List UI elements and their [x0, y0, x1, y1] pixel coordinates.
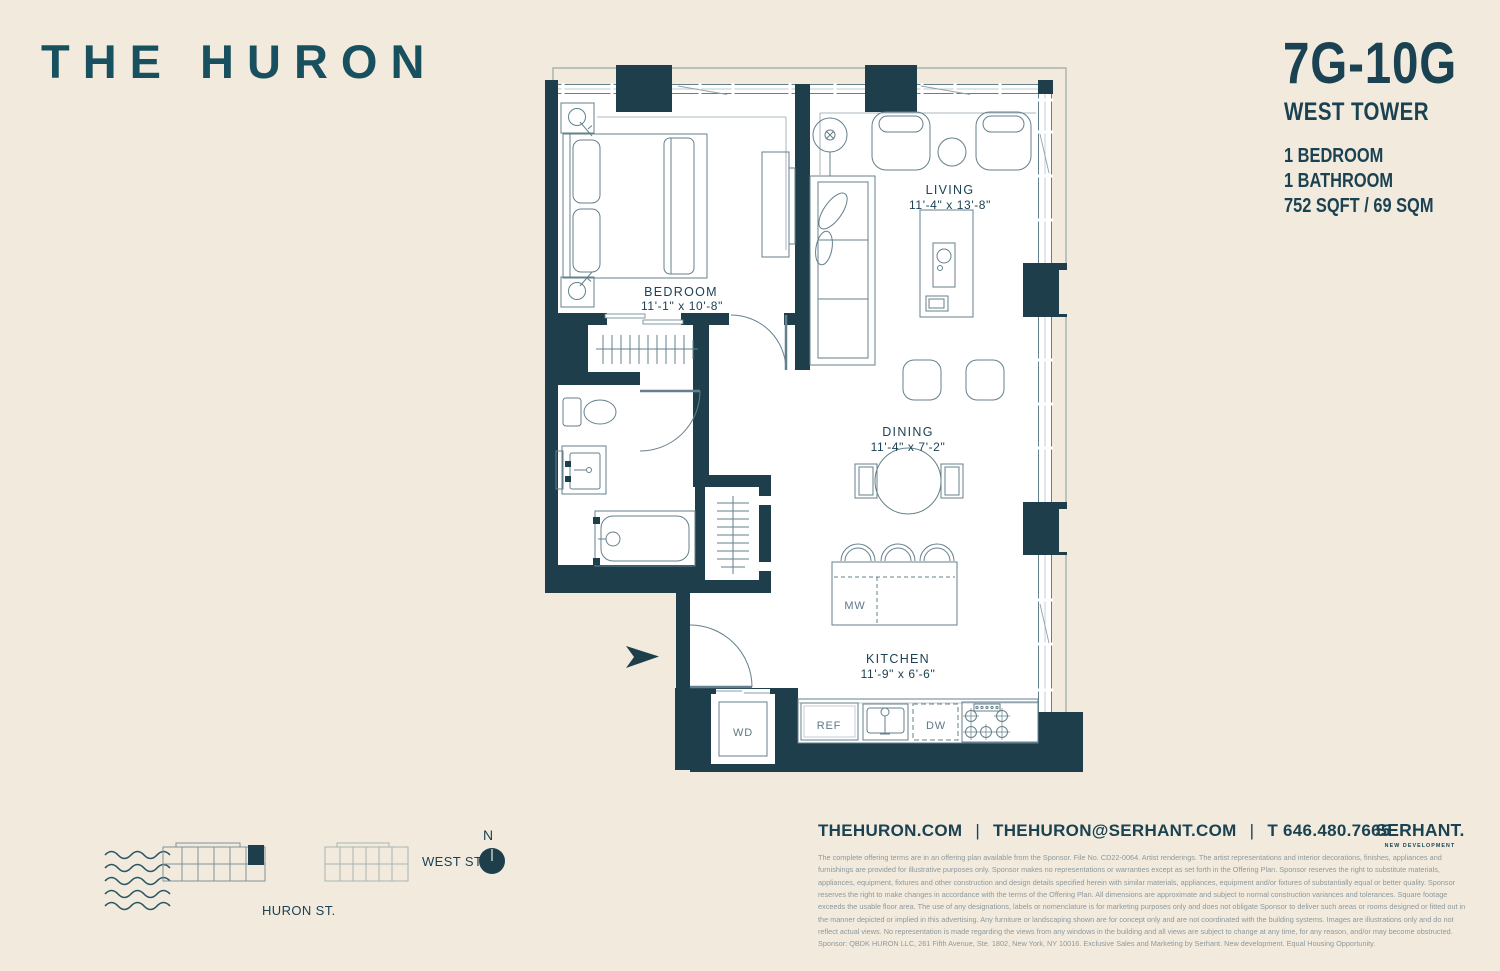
site-plan-building-1 [163, 843, 265, 881]
entry-arrow-icon [626, 646, 659, 668]
kitchen-dims: 11'-9" x 6'-6" [861, 667, 936, 681]
contact-row: THEHURON.COM|THEHURON@SERHANT.COM|T 646.… [818, 821, 1391, 841]
water-icon [105, 852, 170, 910]
dining-dims: 11'-4" x 7'-2" [871, 440, 946, 454]
kitchen-island [832, 562, 957, 625]
huron-st-label: HURON ST. [262, 903, 336, 918]
phone: T 646.480.7665 [1267, 821, 1390, 840]
website: THEHURON.COM [818, 821, 962, 840]
unit-location-highlight [248, 845, 264, 865]
refrigerator-label: REF [817, 720, 841, 732]
microwave-label: MW [844, 600, 865, 612]
kitchen-label: KITCHEN [866, 652, 930, 666]
separator: | [962, 821, 993, 840]
closet-sliding-door [605, 314, 645, 318]
brochure-page: THE HURON 7G-10G WEST TOWER 1 BEDROOM 1 … [0, 0, 1500, 971]
bedroom-label: BEDROOM [644, 285, 718, 299]
dining-label: DINING [882, 425, 934, 439]
bedroom-dims: 11'-1" x 10'-8" [641, 299, 723, 313]
closet-sliding-door [643, 320, 683, 324]
dishwasher-label: DW [926, 720, 946, 732]
serhant-logo: SERHANT. NEW DEVELOPMENT [1374, 820, 1466, 849]
living-label: LIVING [926, 183, 975, 197]
serhant-wordmark: SERHANT. [1374, 820, 1466, 841]
west-st-label: WEST ST. [422, 854, 485, 869]
living-dims: 11'-4" x 13'-8" [909, 198, 991, 212]
compass-north-label: N [483, 827, 493, 843]
washer-dryer-label: WD [733, 727, 753, 739]
legal-disclaimer: The complete offering terms are in an of… [818, 852, 1474, 951]
email: THEHURON@SERHANT.COM [993, 821, 1237, 840]
site-plan-building-2 [325, 843, 408, 881]
serhant-subtitle: NEW DEVELOPMENT [1374, 843, 1466, 849]
separator: | [1237, 821, 1268, 840]
